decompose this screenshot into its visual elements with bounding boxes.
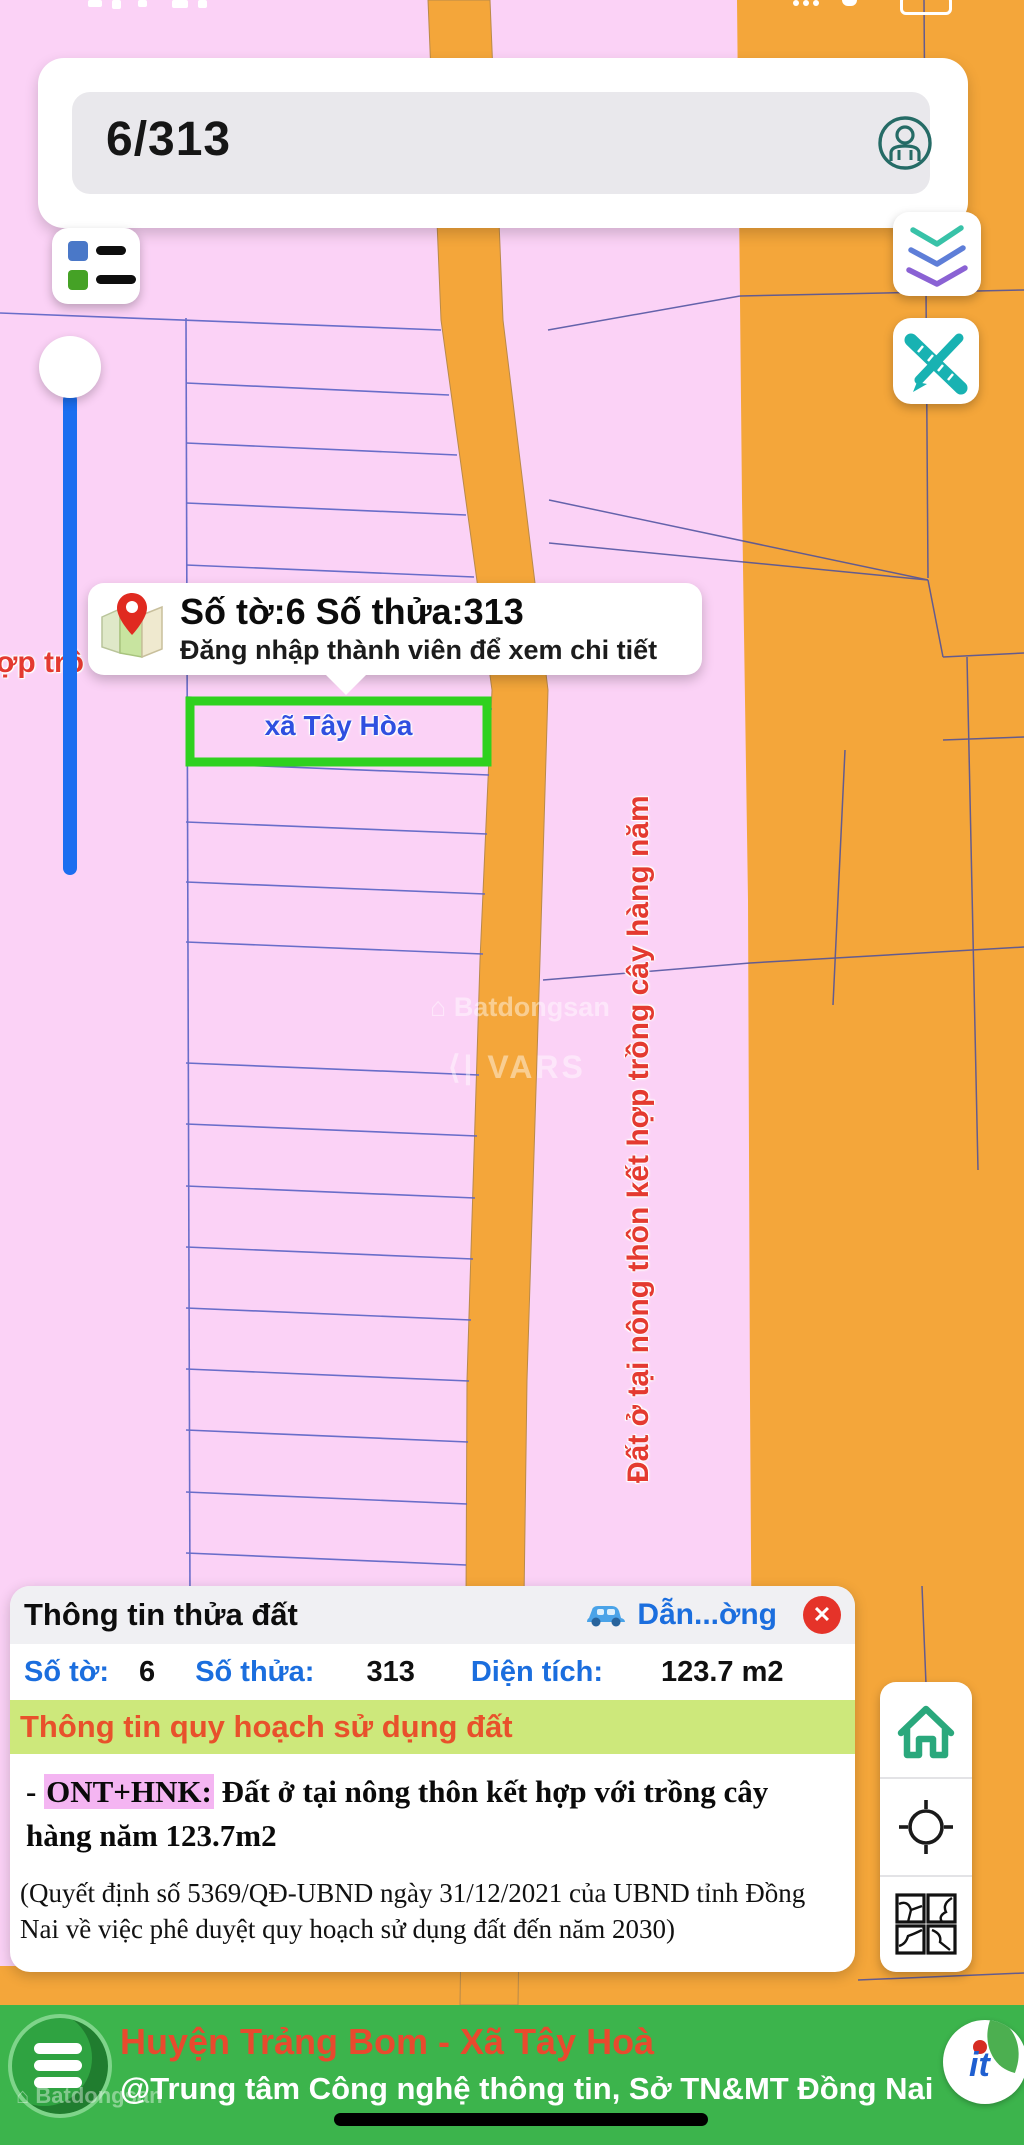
legend-button[interactable] — [52, 228, 140, 304]
close-panel-button[interactable]: ✕ — [803, 1596, 841, 1634]
footer-location: Huyện Trảng Bom - Xã Tây Hoà — [120, 2021, 654, 2063]
field-dien-tich-label: Diện tích: — [471, 1656, 603, 1689]
legend-list-icon — [52, 228, 140, 304]
measure-button[interactable] — [893, 318, 979, 404]
map-sheets-icon — [892, 1890, 960, 1958]
panel-header: Thông tin thửa đất Dẫn...ờng ✕ — [10, 1586, 855, 1644]
field-dien-tich-value: 123.7 m2 — [661, 1656, 784, 1689]
zone-label-vertical: Đất ở tại nông thôn kết hợp trồng cây hà… — [622, 883, 658, 1483]
app-screen: ⌂ Batdongsan ⟨| VARS Đất ở tại nông thôn… — [0, 0, 1024, 2145]
car-icon — [585, 1602, 627, 1628]
status-time-glyphs — [88, 0, 102, 7]
tooltip-title: Số tờ:6 Số thửa:313 — [180, 591, 524, 633]
home-button[interactable] — [880, 1682, 972, 1777]
tooltip-login-hint: Đăng nhập thành viên để xem chi tiết — [180, 635, 657, 666]
status-signal-icon — [793, 0, 799, 6]
map-sheets-button[interactable] — [880, 1875, 972, 1972]
planning-dash: - — [26, 1774, 44, 1809]
parcel-tooltip[interactable]: Số tờ:6 Số thửa:313 Đăng nhập thành viên… — [88, 583, 702, 675]
field-so-to-value: 6 — [139, 1656, 155, 1689]
ruler-pencil-icon — [893, 318, 979, 404]
measure-line — [63, 393, 77, 875]
planning-code: ONT+HNK: — [44, 1774, 214, 1809]
parcel-fields-row: Số tờ: 6 Số thửa: 313 Diện tích: 123.7 m… — [10, 1644, 855, 1700]
home-icon — [893, 1697, 959, 1763]
status-battery-icon — [900, 0, 952, 15]
locate-button[interactable] — [880, 1777, 972, 1874]
direction-link[interactable]: Dẫn...ờng — [585, 1598, 777, 1632]
account-icon[interactable] — [876, 114, 934, 172]
map-nav-stack — [880, 1682, 972, 1972]
selected-parcel-label: xã Tây Hòa — [190, 710, 487, 742]
map-watermark-vars: ⟨| VARS — [448, 1048, 586, 1086]
footer-credit: @Trung tâm Công nghệ thông tin, Sở TN&MT… — [120, 2071, 933, 2107]
menu-icon — [34, 2043, 82, 2054]
layers-button[interactable] — [893, 212, 981, 296]
direction-label: Dẫn...ờng — [637, 1598, 777, 1632]
field-so-to-label: Số tờ: — [24, 1656, 109, 1689]
home-indicator — [334, 2113, 708, 2126]
crosshair-icon — [895, 1796, 957, 1858]
decision-note: (Quyết định số 5369/QĐ-UBND ngày 31/12/2… — [10, 1858, 855, 1947]
status-wifi-icon — [842, 0, 857, 6]
layers-icon — [893, 212, 981, 296]
org-logo: it — [943, 2020, 1024, 2104]
measure-point-handle[interactable] — [39, 336, 101, 398]
search-value: 6/313 — [106, 112, 231, 167]
field-so-thua-label: Số thửa: — [195, 1656, 314, 1689]
status-bar — [0, 0, 1024, 12]
map-watermark-brand: ⌂ Batdongsan — [430, 992, 610, 1023]
map-pin-icon — [96, 591, 168, 663]
field-so-thua-value: 313 — [366, 1656, 414, 1689]
parcel-info-panel: Thông tin thửa đất Dẫn...ờng ✕ Số tờ: 6 … — [10, 1586, 855, 1972]
footer-bar: Huyện Trảng Bom - Xã Tây Hoà @Trung tâm … — [0, 2005, 1024, 2145]
planning-header: Thông tin quy hoạch sử dụng đất — [10, 1700, 855, 1754]
logo-text: it — [969, 2046, 990, 2085]
panel-title: Thông tin thửa đất — [24, 1597, 298, 1633]
footer-watermark: ⌂ Batdongsan — [16, 2083, 163, 2109]
planning-detail: - ONT+HNK: Đất ở tại nông thôn kết hợp v… — [10, 1754, 855, 1858]
